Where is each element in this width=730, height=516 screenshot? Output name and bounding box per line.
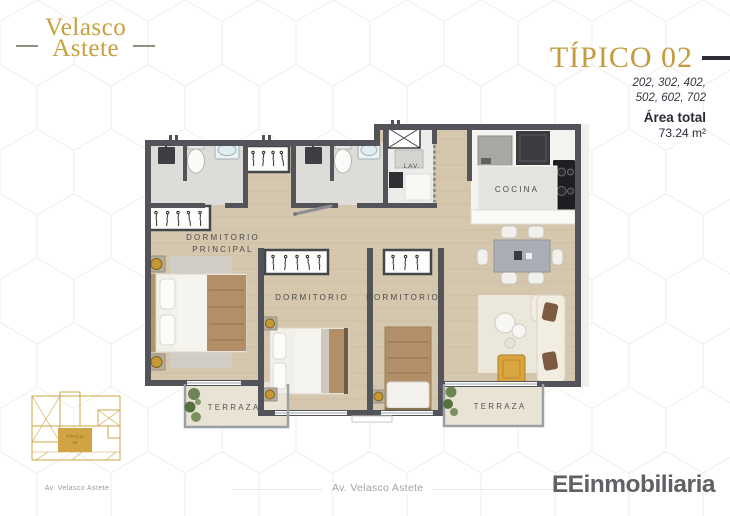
- label-bedroom-right: DORMITORIO: [366, 293, 440, 302]
- label-bedroom-center: DORMITORIO: [275, 293, 349, 302]
- armchair: [498, 355, 525, 383]
- pillow: [387, 382, 429, 408]
- coffee-table: [505, 338, 515, 348]
- pillow: [160, 279, 175, 309]
- brand-logo: Velasco Astete: [16, 18, 155, 59]
- unit-numbers-line2: 502, 602, 702: [632, 91, 706, 106]
- dining-chair: [501, 272, 517, 284]
- site-key-map: TÍPICO 02: [22, 380, 132, 482]
- closet: [148, 206, 210, 230]
- area-label: Área total: [644, 110, 706, 125]
- lamp: [266, 319, 275, 328]
- dining-chair: [528, 272, 544, 284]
- minimap-unit-label-line1: TÍPICO: [66, 433, 84, 439]
- brand-name-line2: Astete: [52, 39, 119, 60]
- title-accent-bar: [702, 56, 730, 60]
- closet: [265, 250, 328, 274]
- toilet: [188, 149, 205, 173]
- lamp: [151, 259, 162, 270]
- unit-numbers-line1: 202, 302, 402,: [632, 76, 706, 91]
- unit-numbers: 202, 302, 402, 502, 602, 702: [632, 76, 706, 106]
- label-terrace-left: TERRAZA: [208, 403, 261, 412]
- shower: [158, 147, 175, 164]
- dryer: [389, 172, 403, 188]
- street-label: Av. Velasco Astete: [322, 482, 433, 494]
- label-master-bedroom-line1: DORMITORIO: [186, 233, 260, 242]
- lamp: [374, 392, 383, 401]
- toilet: [335, 149, 352, 173]
- pillow: [273, 333, 286, 359]
- label-master-bedroom-line2: PRINCIPAL: [192, 245, 253, 254]
- total-area-block: Área total 73.24 m²: [644, 110, 706, 140]
- label-kitchen: COCINA: [495, 185, 539, 194]
- floorplan: COCINA: [145, 118, 592, 432]
- dining-chair: [477, 249, 488, 265]
- pillow: [273, 363, 286, 389]
- center-bedroom-furniture: [263, 317, 348, 401]
- plan-title-row: TÍPICO 02: [550, 41, 730, 75]
- minimap-caption: Av. Velasco Astete: [22, 485, 132, 492]
- dining-chair: [552, 249, 563, 265]
- pillow: [160, 315, 175, 345]
- lamp: [151, 357, 162, 368]
- plan-title: TÍPICO 02: [550, 41, 693, 75]
- shower: [305, 147, 322, 164]
- developer-logo: EEinmobiliaria: [552, 471, 715, 499]
- label-laundry: LAV.: [403, 163, 420, 170]
- label-terrace-right: TERRAZA: [474, 402, 527, 411]
- area-value: 73.24 m²: [644, 126, 706, 140]
- kitchen-counter: [471, 210, 575, 224]
- lamp: [266, 390, 275, 399]
- dining-chair: [501, 226, 517, 238]
- logo-right-dash: [133, 45, 155, 47]
- coffee-table: [512, 324, 526, 338]
- fridge: [516, 131, 550, 165]
- living-room-furniture: [478, 295, 565, 383]
- closet: [384, 250, 431, 274]
- logo-left-dash: [16, 45, 38, 47]
- minimap-unit-label-line2: 02: [72, 440, 78, 445]
- dining-chair: [528, 226, 544, 238]
- brochure-page: Velasco Astete TÍPICO 02 202, 302, 402, …: [0, 0, 730, 516]
